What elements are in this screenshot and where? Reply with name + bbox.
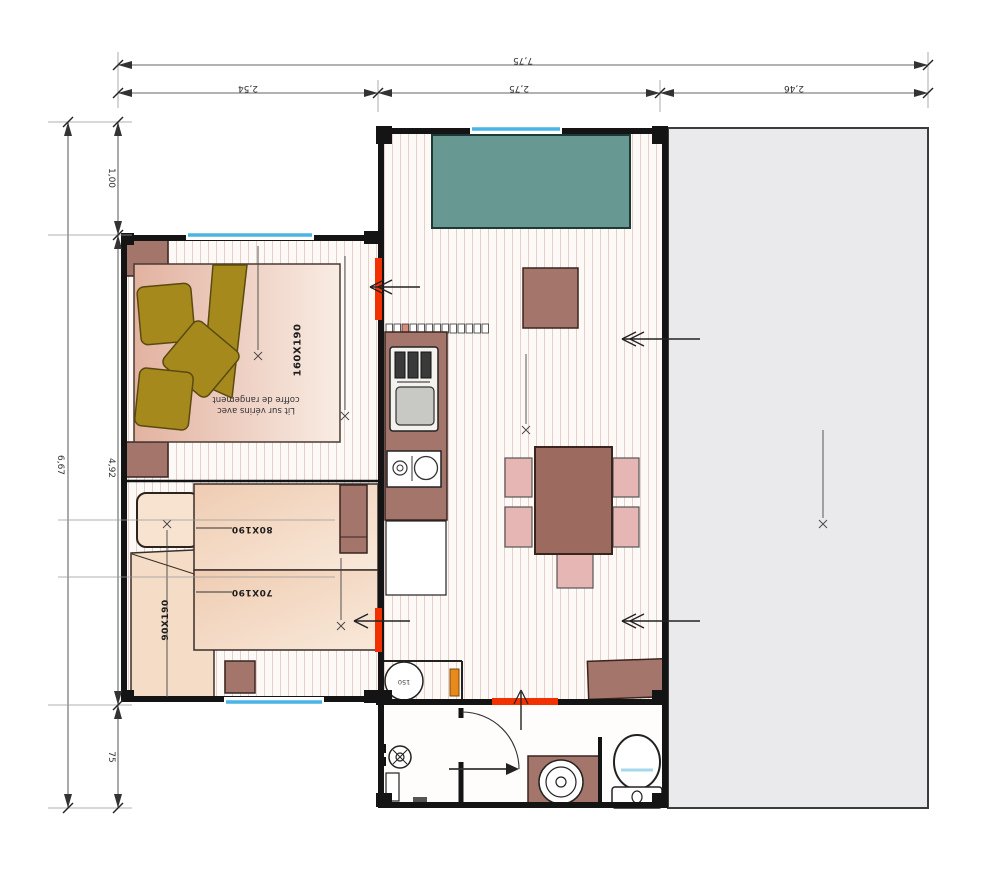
round-sink: [415, 457, 438, 480]
chair: [505, 458, 532, 497]
bed-70x190: [194, 570, 378, 650]
chair: [505, 507, 532, 547]
dining-table: [535, 447, 612, 554]
water-heater-label: 150: [398, 678, 410, 686]
kitchen-cabinet: [386, 521, 446, 595]
dim-top-total-label: 7,75: [513, 55, 533, 65]
closet-door-orange: [450, 669, 459, 696]
nightstand-bottom: [126, 442, 168, 477]
burner: [421, 352, 431, 378]
wardrobe: [340, 485, 367, 553]
flush-button: [632, 791, 642, 803]
oven: [396, 387, 434, 425]
dim-top-left-label: 2,54: [238, 83, 258, 93]
terrace-floor: [668, 128, 928, 808]
bed-note: Lit sur vérins avec coffre de rangement: [212, 393, 299, 415]
toilet-bowl: [614, 735, 660, 789]
chair: [613, 458, 639, 497]
bed-160x190-label: 160X190: [293, 324, 304, 377]
stool: [225, 661, 255, 693]
bed-90x190-label: 90X190: [161, 599, 171, 640]
dim-left-bottom-label: 75: [106, 751, 116, 762]
bed-note-line1: Lit sur vérins avec: [212, 404, 299, 415]
floor-plan-drawing: [0, 0, 1000, 880]
burner: [395, 352, 405, 378]
dim-left-total-label: 6,67: [55, 455, 65, 475]
bed-note-line2: coffre de rangement: [212, 393, 299, 404]
dim-left-middle-label: 4,92: [106, 458, 116, 478]
bed-80x190-label: 80X190: [231, 524, 272, 534]
door-marker-left-bottom: [375, 608, 382, 652]
faucet: [393, 461, 407, 475]
bed-70x190-label: 70X190: [231, 587, 272, 597]
dim-top-right-label: 2,46: [784, 83, 804, 93]
sofa-teal: [432, 135, 630, 228]
chair: [613, 507, 639, 547]
chair: [557, 553, 593, 588]
pillow: [134, 367, 194, 430]
bedroom1-furniture: [126, 240, 340, 477]
dim-top-middle-label: 2,75: [509, 83, 529, 93]
storage-unit: [523, 268, 578, 328]
dim-left-top-label: 1,00: [106, 168, 116, 188]
floor-plan-canvas: 7,75 2,54 2,75 2,46 6,67 1,00 4,92 75 16…: [0, 0, 1000, 880]
burner: [408, 352, 418, 378]
